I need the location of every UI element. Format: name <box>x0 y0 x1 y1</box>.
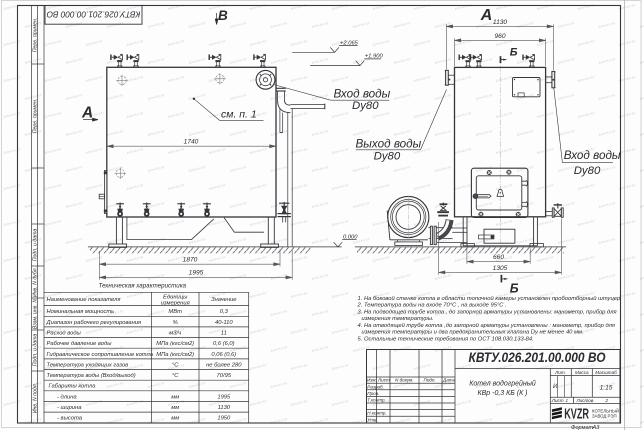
svg-text:Значение: Значение <box>211 297 237 303</box>
svg-text:1870: 1870 <box>183 257 198 264</box>
svg-text:МПа (кгс/см2): МПа (кгс/см2) <box>156 352 194 358</box>
svg-text:Наименование показателя: Наименование показателя <box>47 297 121 303</box>
svg-text:Масса: Масса <box>575 370 589 375</box>
svg-text:Т.контр.: Т.контр. <box>367 398 386 403</box>
svg-text:Дата: Дата <box>442 378 456 383</box>
svg-text:1. На боковой стенке котла в: 1. На боковой стенке котла в области топ… <box>358 295 621 302</box>
svg-text:Масштаб: Масштаб <box>595 370 617 375</box>
svg-text:Подп. и дата: Подп. и дата <box>32 229 38 262</box>
svg-text:мм: мм <box>171 405 179 411</box>
svg-text:1950: 1950 <box>217 416 231 422</box>
svg-text:КВр -0,3 КБ (К ): КВр -0,3 КБ (К ) <box>478 390 528 397</box>
svg-text:- ширина: - ширина <box>57 405 82 411</box>
svg-text:+2.065: +2.065 <box>340 40 359 46</box>
svg-text:1305: 1305 <box>493 265 508 272</box>
svg-text:Б: Б <box>510 282 519 296</box>
svg-text:А: А <box>480 7 493 24</box>
svg-text:Расход воды: Расход воды <box>47 331 82 337</box>
svg-text:Вход воды: Вход воды <box>564 149 621 162</box>
svg-text:1995: 1995 <box>189 270 204 277</box>
svg-text:Перв. примен.: Перв. примен. <box>32 18 38 52</box>
svg-text:0,6 (6,0): 0,6 (6,0) <box>213 341 235 347</box>
svg-text:Выход воды: Выход воды <box>356 137 422 150</box>
svg-text:Гидравлическое сопротивление к: Гидравлическое сопротивление котла <box>47 352 154 358</box>
svg-text:А3: А3 <box>592 425 601 430</box>
svg-text:Dy80: Dy80 <box>352 100 379 112</box>
svg-text:И: И <box>553 383 558 390</box>
svg-text:Утв.: Утв. <box>367 417 377 422</box>
svg-text:Формат: Формат <box>571 425 594 430</box>
svg-text:Температура воды (Вход/выход): Температура воды (Вход/выход) <box>47 373 136 379</box>
svg-text:KVZR: KVZR <box>564 406 589 422</box>
svg-text:А: А <box>81 104 93 121</box>
svg-text:1130: 1130 <box>493 19 508 26</box>
svg-text:КВТУ.026.201.00.000 ВО: КВТУ.026.201.00.000 ВО <box>469 350 607 365</box>
svg-text:1:15: 1:15 <box>600 385 613 392</box>
svg-text:Техническая характеристика: Техническая характеристика <box>99 283 187 290</box>
svg-text:4. На отводящей трубе котла ,: 4. На отводящей трубе котла ,до запорной… <box>358 322 616 329</box>
svg-text:1130: 1130 <box>218 405 231 411</box>
svg-text:2: 2 <box>605 398 609 403</box>
svg-text:0,06 (0,6): 0,06 (0,6) <box>211 352 236 358</box>
svg-text:Лист: Лист <box>551 398 564 403</box>
svg-text:Пров.: Пров. <box>367 391 379 396</box>
svg-text:Изм.: Изм. <box>367 378 377 383</box>
svg-text:1: 1 <box>566 398 569 403</box>
svg-text:МПа (кгс/см2): МПа (кгс/см2) <box>156 341 194 347</box>
svg-text:0,3: 0,3 <box>220 309 229 315</box>
svg-text:измерения температуры и два пр: измерения температуры и два предохраните… <box>362 330 584 336</box>
svg-text:Вход воды: Вход воды <box>334 87 391 100</box>
svg-text:мм: мм <box>171 394 179 400</box>
svg-text:660: 660 <box>493 254 504 261</box>
svg-text:Dy80: Dy80 <box>574 165 601 177</box>
svg-text:Перв. примен.: Перв. примен. <box>32 99 38 133</box>
svg-text:Номинальная мощность: Номинальная мощность <box>47 309 115 315</box>
svg-text:960: 960 <box>494 33 505 40</box>
svg-text:N докум.: N докум. <box>395 378 414 383</box>
svg-text:°С: °С <box>172 362 179 368</box>
svg-text:Взам. инв. N: Взам. инв. N <box>32 299 38 329</box>
svg-text:11: 11 <box>221 331 227 337</box>
svg-text:°С: °С <box>172 373 179 379</box>
svg-text:Габариты котла: Габариты котла <box>49 384 97 390</box>
svg-text:1995: 1995 <box>217 394 231 400</box>
svg-text:Инв. N дубл.: Инв. N дубл. <box>32 267 38 297</box>
svg-text:Dy80: Dy80 <box>374 151 401 163</box>
svg-text:Подп.: Подп. <box>424 378 436 383</box>
svg-text:- высота: - высота <box>57 416 83 422</box>
svg-text:5. Остальные технические треб: 5. Остальные технические требования по О… <box>358 336 534 342</box>
svg-text:КВТУ.026.201.00.000 ВО: КВТУ.026.201.00.000 ВО <box>46 9 140 19</box>
svg-text:Котел водогрейный: Котел водогрейный <box>469 380 536 388</box>
svg-text:см. п. 1: см. п. 1 <box>221 109 257 121</box>
svg-text:%: % <box>173 320 178 326</box>
svg-text:Н.контр.: Н.контр. <box>367 411 386 416</box>
svg-text:м3/ч: м3/ч <box>169 331 181 337</box>
svg-text:Температура уходящих газов: Температура уходящих газов <box>47 362 129 368</box>
svg-text:- длина: - длина <box>57 394 77 400</box>
svg-text:Разраб.: Разраб. <box>367 384 384 389</box>
svg-text:2. Температура воды на входе: 2. Температура воды на входе 70°С , на в… <box>357 303 507 309</box>
svg-text:1740: 1740 <box>184 139 199 146</box>
svg-text:ЗАВОД РЭП: ЗАВОД РЭП <box>592 413 617 418</box>
svg-text:Лит.: Лит. <box>554 370 566 375</box>
svg-text:40-110: 40-110 <box>215 320 233 326</box>
svg-text:Б: Б <box>510 46 518 58</box>
svg-text:3. На подводящей трубе котла: 3. На подводящей трубе котла , до запорн… <box>358 308 617 315</box>
svg-text:В: В <box>218 8 228 23</box>
svg-text:не более 280: не более 280 <box>206 362 242 368</box>
svg-text:Диапазон рабочего регулировани: Диапазон рабочего регулирования <box>46 320 142 326</box>
svg-text:+1.900: +1.900 <box>365 54 384 60</box>
svg-text:70/95: 70/95 <box>217 373 232 379</box>
svg-text:Листов: Листов <box>576 398 594 403</box>
svg-text:измерения температуры.: измерения температуры. <box>362 316 434 322</box>
svg-text:МВт: МВт <box>168 309 182 315</box>
svg-text:Подп. и дата: Подп. и дата <box>32 334 38 367</box>
svg-text:Инв. N подл.: Инв. N подл. <box>32 383 38 413</box>
svg-text:мм: мм <box>171 416 179 422</box>
svg-text:Рабочее давление воды: Рабочее давление воды <box>47 341 113 347</box>
svg-text:Лист: Лист <box>377 378 390 383</box>
svg-text:измерения: измерения <box>161 300 190 306</box>
svg-text:0.000: 0.000 <box>343 234 358 240</box>
